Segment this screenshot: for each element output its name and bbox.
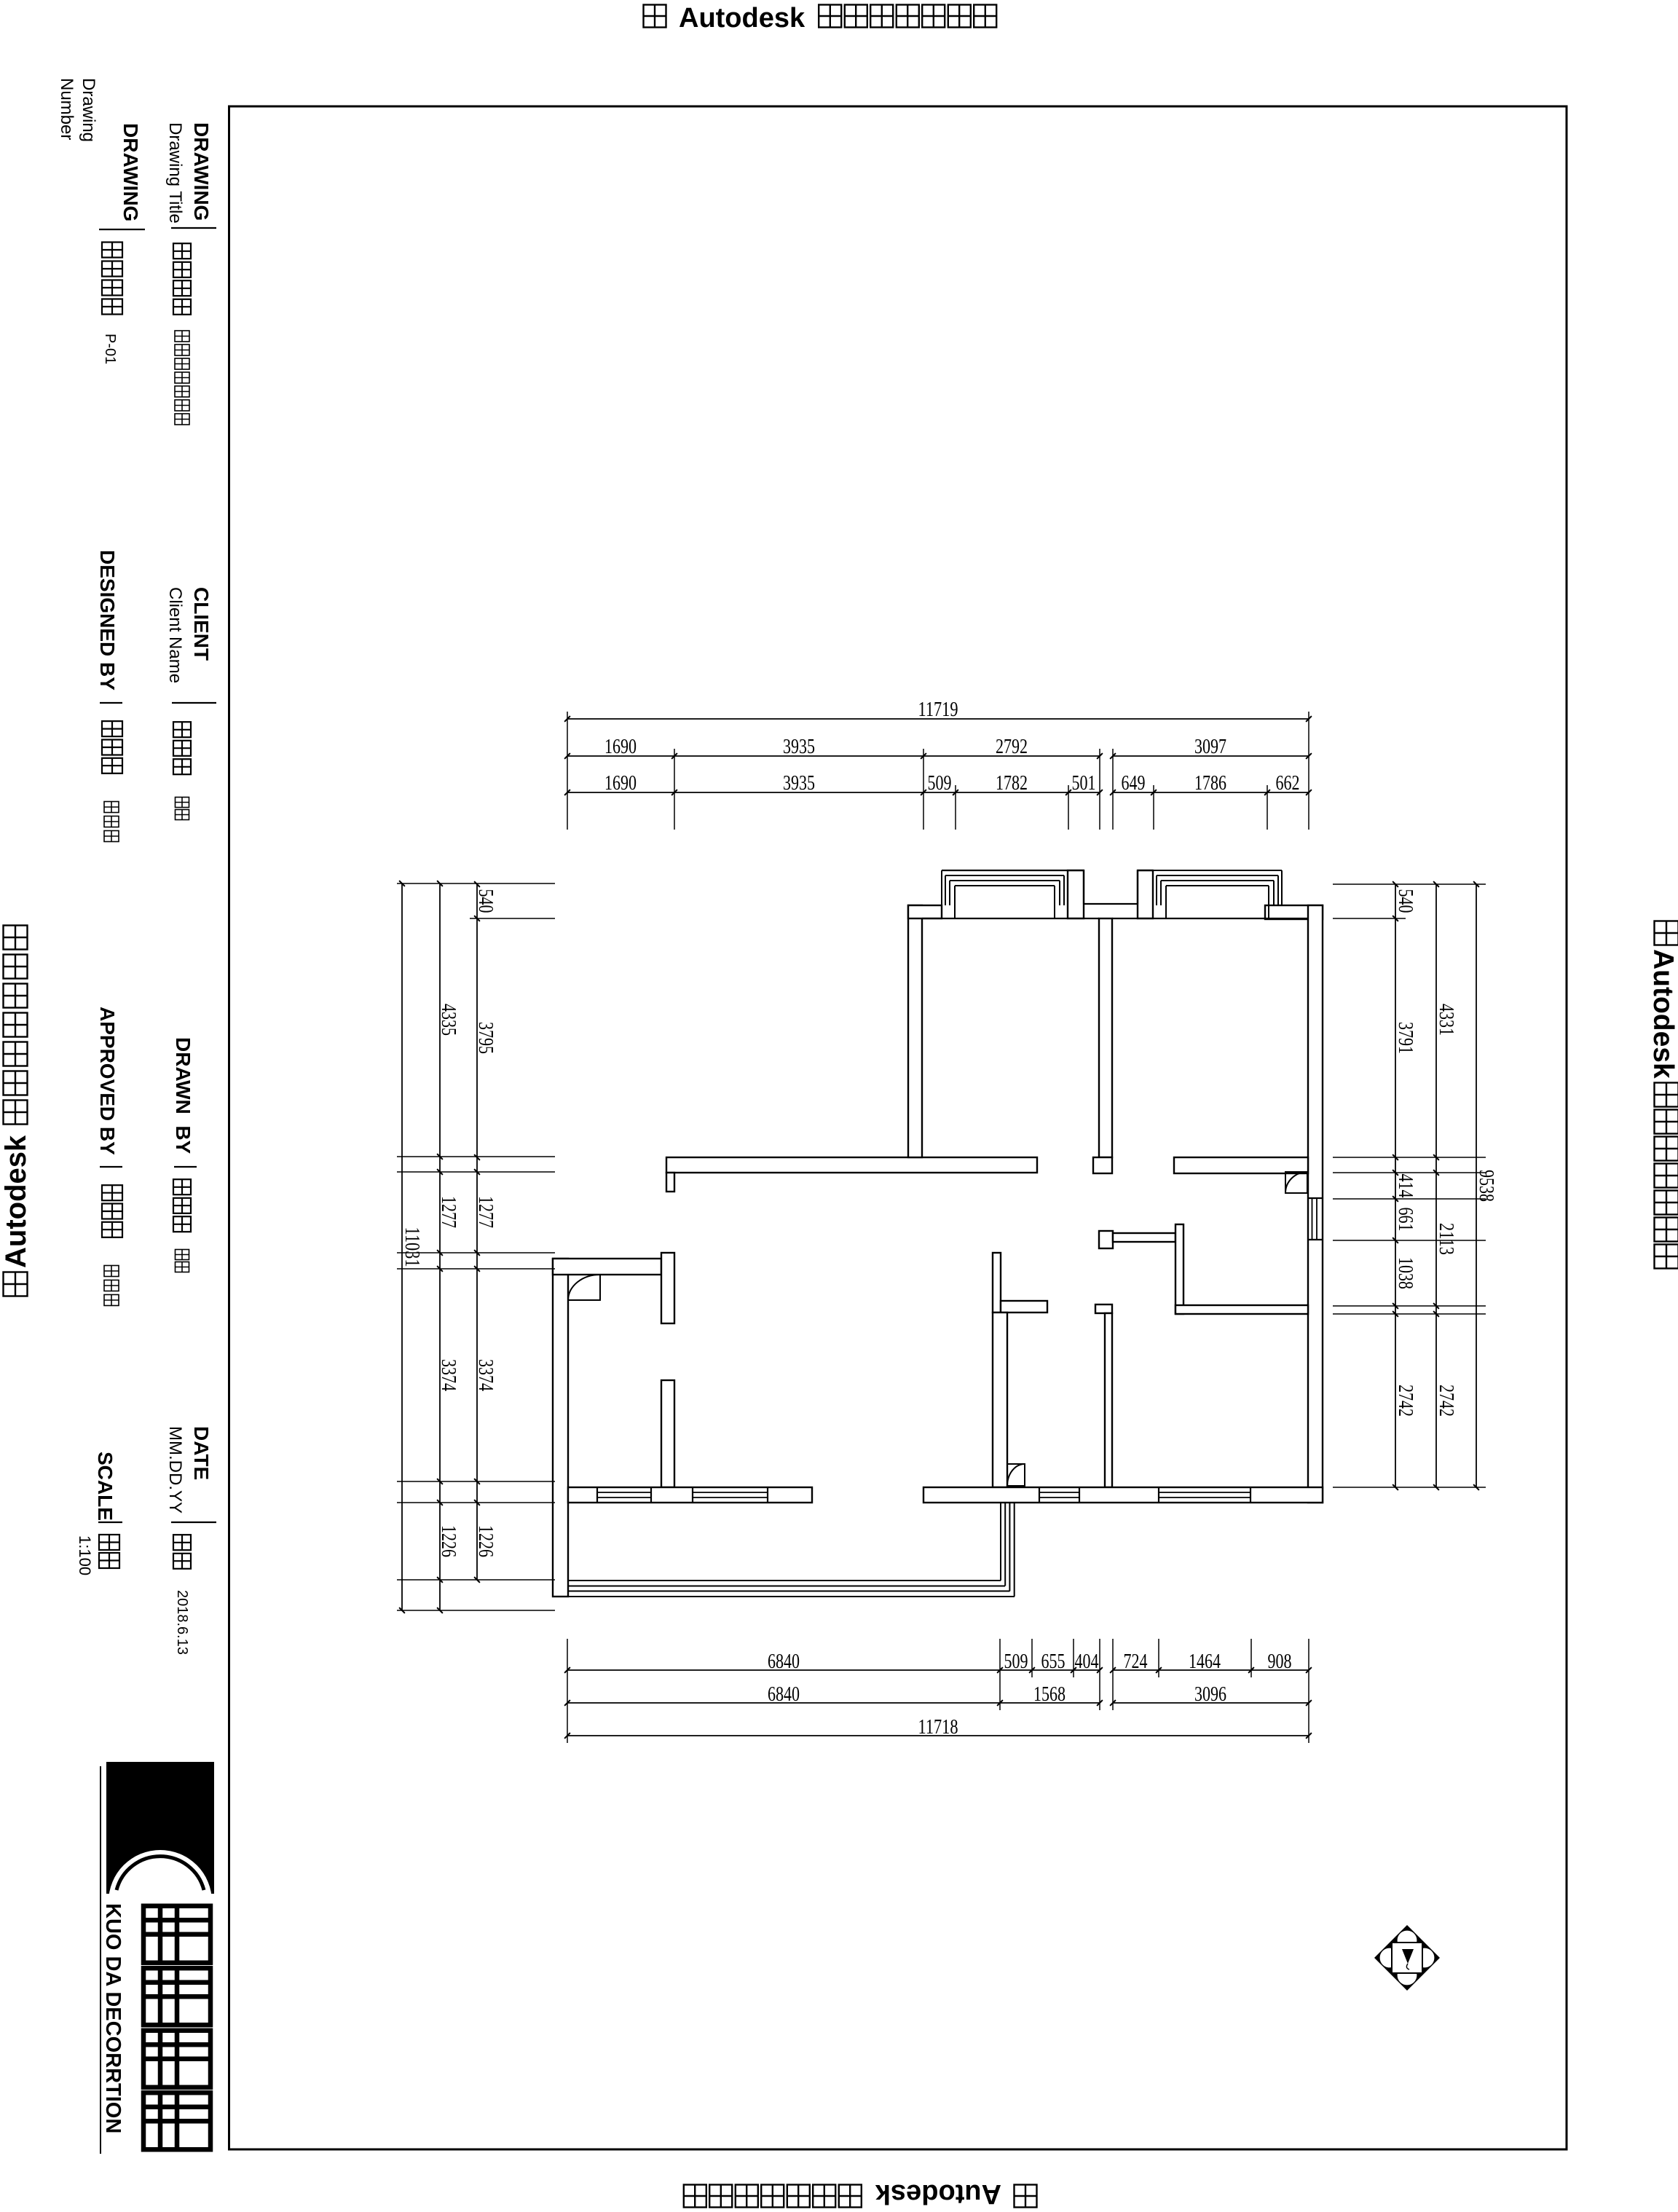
svg-text:DRAWING: DRAWING [119,123,142,221]
svg-text:501: 501 [1072,772,1096,795]
svg-text:3935: 3935 [783,736,815,758]
svg-text:2018.6.13: 2018.6.13 [174,1590,190,1655]
svg-text:Autodesk: Autodesk [679,3,805,34]
svg-text:Drawing: Drawing [79,78,98,142]
svg-text:3935: 3935 [783,772,815,795]
svg-text:414: 414 [1394,1174,1417,1198]
svg-text:Autodesk: Autodesk [875,2178,1001,2209]
svg-text:509: 509 [1004,1650,1028,1673]
svg-text:3795: 3795 [474,1022,497,1054]
svg-text:11031: 11031 [401,1227,423,1267]
svg-text:1226: 1226 [437,1525,460,1557]
svg-text:DESIGNED BY: DESIGNED BY [96,550,119,690]
svg-text:6840: 6840 [768,1650,800,1673]
svg-text:540: 540 [474,889,497,913]
svg-text:11719: 11719 [918,698,958,721]
svg-text:2742: 2742 [1435,1385,1457,1417]
svg-text:1277: 1277 [474,1196,497,1228]
svg-text:KUO DA DECORRTION: KUO DA DECORRTION [101,1903,125,2133]
svg-text:11718: 11718 [918,1716,958,1739]
svg-text:3097: 3097 [1194,736,1226,758]
svg-text:540: 540 [1394,889,1417,913]
svg-text:SCALE: SCALE [94,1452,117,1521]
svg-text:DRAWING: DRAWING [190,122,213,221]
svg-text:655: 655 [1041,1650,1066,1673]
svg-text:2742: 2742 [1394,1385,1417,1417]
svg-text:Autodesk: Autodesk [0,1135,32,1268]
svg-text:Client Name: Client Name [165,587,185,683]
svg-text:4331: 4331 [1435,1004,1457,1036]
svg-text:Number: Number [57,78,76,140]
svg-text:P-01: P-01 [102,334,118,364]
svg-text:1038: 1038 [1394,1257,1417,1289]
svg-text:6840: 6840 [768,1683,800,1706]
svg-text:908: 908 [1268,1650,1292,1673]
svg-text:3791: 3791 [1394,1022,1417,1054]
svg-text:1277: 1277 [437,1196,460,1228]
svg-text:1568: 1568 [1033,1683,1066,1706]
svg-text:9538: 9538 [1475,1170,1497,1202]
svg-text:APPROVED BY: APPROVED BY [96,1007,119,1155]
svg-text:724: 724 [1124,1650,1148,1673]
svg-text:MM.DD.YY: MM.DD.YY [165,1426,185,1514]
svg-text:2113: 2113 [1435,1223,1457,1255]
svg-text:404: 404 [1075,1650,1099,1673]
svg-text:4335: 4335 [437,1004,460,1036]
svg-text:1690: 1690 [604,736,637,758]
svg-text:649: 649 [1122,772,1146,795]
svg-text:3374: 3374 [437,1359,460,1391]
svg-text:1786: 1786 [1194,772,1226,795]
svg-text:CLIENT: CLIENT [190,587,213,661]
svg-text:2792: 2792 [996,736,1028,758]
svg-text:3096: 3096 [1194,1683,1226,1706]
svg-text:DATE: DATE [190,1426,213,1480]
svg-text:DRAWN BY: DRAWN BY [172,1037,194,1154]
svg-text:1464: 1464 [1189,1650,1221,1673]
svg-text:509: 509 [928,772,952,795]
svg-text:662: 662 [1276,772,1300,795]
svg-text:1782: 1782 [996,772,1028,795]
svg-text:1226: 1226 [474,1525,497,1557]
svg-text:Drawing Title: Drawing Title [165,122,185,224]
svg-text:1:100: 1:100 [76,1535,94,1575]
svg-text:1690: 1690 [604,772,637,795]
svg-text:Autodesk: Autodesk [1647,949,1678,1079]
svg-text:661: 661 [1394,1208,1417,1232]
svg-text:3374: 3374 [474,1359,497,1391]
